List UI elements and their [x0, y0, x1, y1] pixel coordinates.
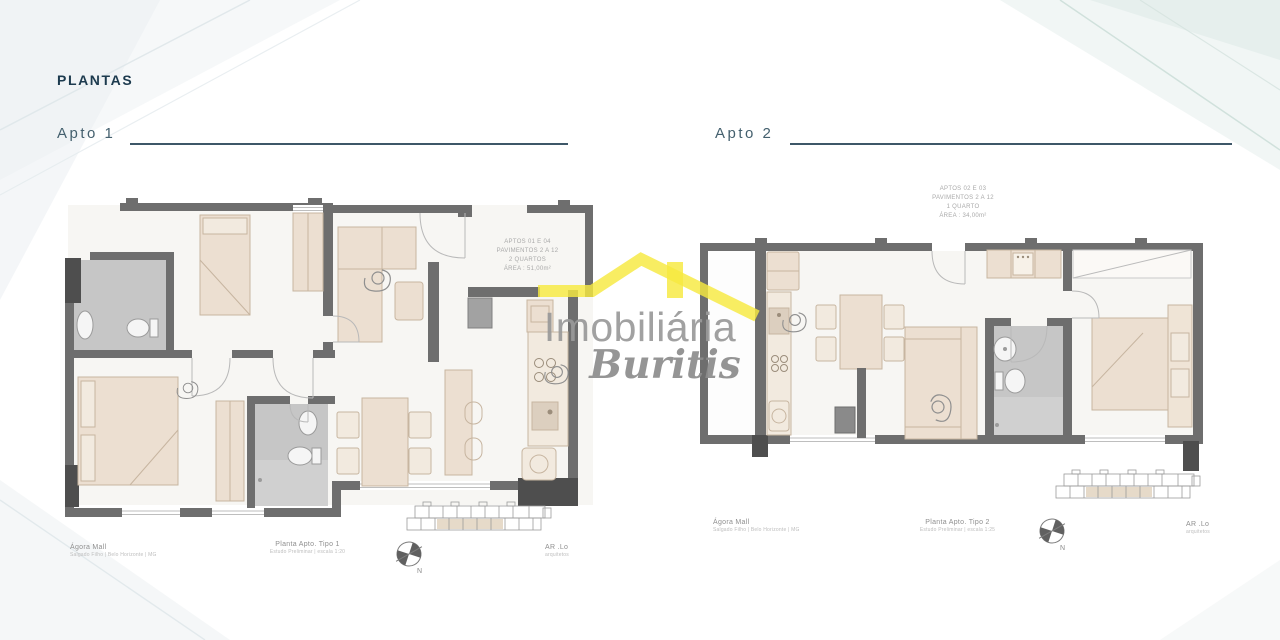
plan1-annotation-line: PAVIMENTOS 2 A 12	[480, 247, 575, 256]
plan2-annotation-line: PAVIMENTOS 2 A 12	[915, 194, 1011, 203]
plan2-rule	[790, 143, 1232, 145]
plan-subtitle: Estudo Preliminar | escala 1:25	[915, 527, 1000, 533]
apto1-bed-single	[200, 215, 250, 315]
apto2-bed-double	[1092, 305, 1192, 427]
svg-text:N: N	[1060, 545, 1065, 551]
plan2-title-caption: Planta Apto. Tipo 2 Estudo Preliminar | …	[915, 519, 1000, 533]
apto1-coffee-table	[395, 282, 423, 320]
plan2-annotation: APTOS 02 E 03 PAVIMENTOS 2 A 12 1 QUARTO…	[915, 185, 1011, 221]
page: PLANTAS Apto 1 Apto 2	[0, 0, 1280, 640]
plan2-annotation-line: ÁREA : 34,00m²	[915, 212, 1011, 221]
plan1-firm-caption: AR .Lo arquitetos	[545, 544, 569, 558]
apto2-sofa	[905, 327, 977, 439]
apto1-keyplan-icon	[403, 496, 555, 538]
logo-script-wordmark: Buritis	[545, 342, 785, 388]
svg-text:N: N	[417, 568, 422, 574]
apto1-bed-double	[78, 377, 178, 485]
plan1-rule	[130, 143, 568, 145]
apto2-hall-closet	[987, 250, 1061, 278]
plan2-annotation-line: 1 QUARTO	[915, 203, 1011, 212]
apto1-wardrobe-2	[216, 401, 244, 501]
firm-name: AR .Lo	[545, 544, 569, 551]
plan2-project-caption: Ágora Mall Salgado Filho | Belo Horizont…	[713, 519, 800, 533]
plan-title: Planta Apto. Tipo 2	[915, 519, 1000, 526]
plan1-annotation-line: ÁREA : 51,00m²	[480, 265, 575, 274]
project-subtitle: Salgado Filho | Belo Horizonte | MG	[713, 527, 800, 533]
firm-name: AR .Lo	[1186, 521, 1210, 528]
page-title: PLANTAS	[57, 72, 133, 88]
apto1-wardrobe-1	[293, 213, 323, 291]
firm-subtitle: arquitetos	[545, 552, 569, 558]
plan2-annotation-line: APTOS 02 E 03	[915, 185, 1011, 194]
plan1-title-caption: Planta Apto. Tipo 1 Estudo Preliminar | …	[255, 541, 360, 555]
compass-icon: N	[394, 540, 428, 574]
plan1-annotation: APTOS 01 E 04 PAVIMENTOS 2 A 12 2 QUARTO…	[480, 238, 575, 274]
plan1-label: Apto 1	[57, 125, 115, 142]
project-name: Ágora Mall	[713, 519, 800, 526]
plan-title: Planta Apto. Tipo 1	[255, 541, 360, 548]
plan2-label: Apto 2	[715, 125, 773, 142]
firm-subtitle: arquitetos	[1186, 529, 1210, 535]
apto2-bedroom-closet	[1073, 250, 1191, 278]
apto2-keyplan-icon	[1052, 464, 1204, 506]
project-name: Ágora Mall	[70, 544, 157, 551]
compass-icon: N	[1037, 517, 1071, 551]
plan-subtitle: Estudo Preliminar | escala 1:20	[255, 549, 360, 555]
plan2-firm-caption: AR .Lo arquitetos	[1186, 521, 1210, 535]
plan1-annotation-line: APTOS 01 E 04	[480, 238, 575, 247]
project-subtitle: Salgado Filho | Belo Horizonte | MG	[70, 552, 157, 558]
plan1-project-caption: Ágora Mall Salgado Filho | Belo Horizont…	[70, 544, 157, 558]
plan1-annotation-line: 2 QUARTOS	[480, 256, 575, 265]
